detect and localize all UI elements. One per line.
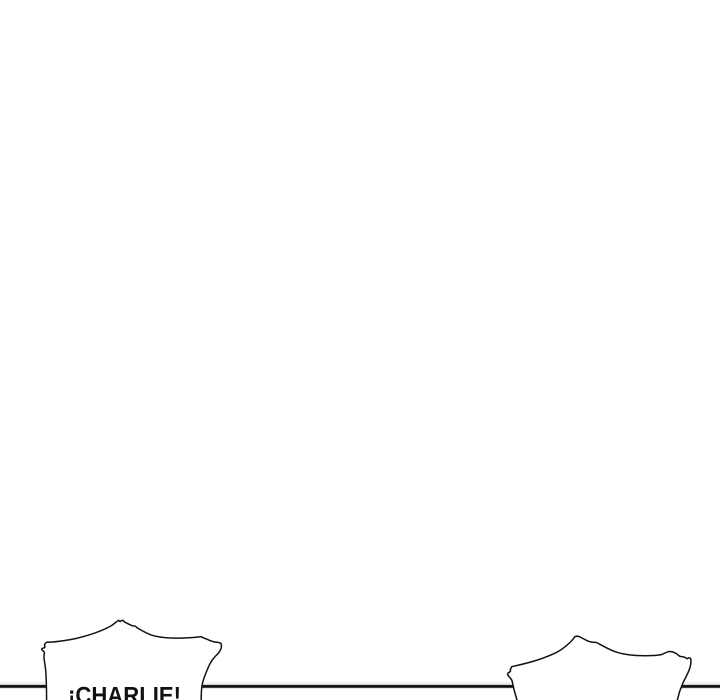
svg-text:¡CHARLIE!: ¡CHARLIE! bbox=[68, 682, 181, 700]
